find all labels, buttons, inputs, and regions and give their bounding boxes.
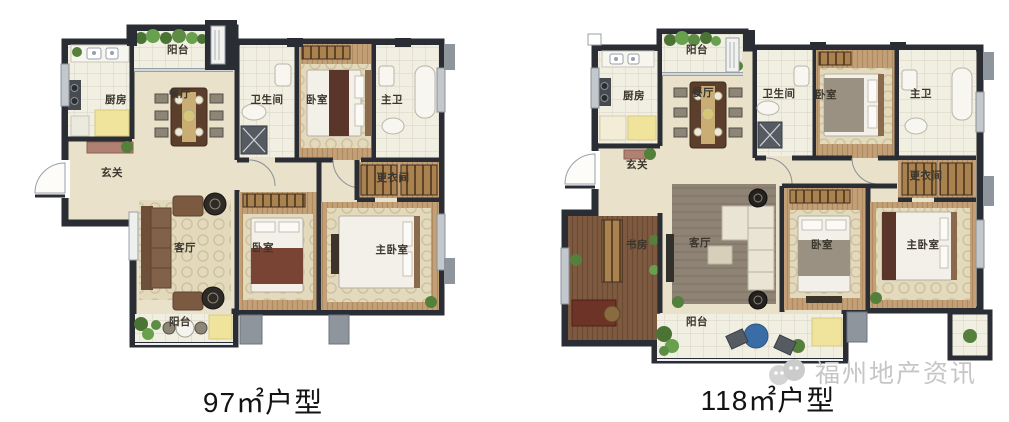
bathroom-area bbox=[755, 48, 815, 158]
room-label-closet: 更衣间 bbox=[910, 171, 943, 182]
watermark-logo-icon bbox=[766, 356, 808, 388]
bench bbox=[806, 296, 842, 303]
sofa-chaise bbox=[722, 206, 748, 240]
room-label-study: 书房 bbox=[626, 240, 648, 251]
toilet-icon bbox=[794, 66, 809, 86]
master-bedroom-area bbox=[321, 202, 439, 310]
room-label-living: 客厅 bbox=[689, 238, 711, 249]
cabinet bbox=[209, 315, 232, 339]
wardrobe-icon bbox=[243, 194, 305, 207]
side-table-icon bbox=[202, 287, 224, 309]
master-bedroom-area bbox=[870, 202, 976, 308]
toilet-icon bbox=[379, 66, 394, 86]
floorplan-image: 阳台 厨房 餐厅 卫生间 卧室 主卫 玄关 更衣间 客厅 卧室 主卧室 阳台 bbox=[0, 0, 1009, 422]
room-label-foyer: 玄关 bbox=[101, 168, 123, 179]
shoe-cabinet bbox=[624, 150, 646, 159]
wardrobe-icon bbox=[819, 52, 851, 65]
entry-door-arc bbox=[565, 154, 595, 184]
room-label-bedroom-1: 卧室 bbox=[811, 240, 833, 251]
armchair bbox=[173, 292, 203, 310]
water-heater-icon bbox=[211, 26, 225, 64]
bathtub-icon bbox=[952, 68, 972, 120]
master-bathroom-area bbox=[899, 50, 976, 156]
room-label-closet: 更衣间 bbox=[377, 173, 410, 184]
tv-bench bbox=[666, 234, 674, 282]
room-label-master-bath: 主卫 bbox=[910, 89, 932, 100]
chair-icon bbox=[604, 306, 620, 322]
room-label-balcony-bottom: 阳台 bbox=[686, 317, 708, 328]
bathtub-icon bbox=[415, 66, 435, 118]
study-area bbox=[561, 213, 660, 340]
room-label-balcony-top: 阳台 bbox=[686, 45, 708, 56]
room-label-balcony-bottom: 阳台 bbox=[169, 317, 191, 328]
room-label-kitchen: 厨房 bbox=[105, 95, 127, 106]
floorplan-118-drawing bbox=[560, 8, 1000, 368]
side-table-icon bbox=[204, 193, 226, 215]
room-label-bedroom-1: 卧室 bbox=[252, 243, 274, 254]
watermark-text: 福州地产资讯 bbox=[815, 354, 977, 390]
room-label-dining: 餐厅 bbox=[169, 89, 191, 100]
watermark: 福州地产资讯 bbox=[766, 354, 977, 390]
round-table-icon bbox=[744, 324, 768, 348]
toilet-icon bbox=[275, 64, 291, 86]
side-table-icon bbox=[749, 189, 767, 207]
wardrobe-icon bbox=[940, 163, 972, 195]
wardrobe-icon bbox=[302, 46, 350, 59]
armchair bbox=[173, 196, 203, 216]
room-label-balcony-top: 阳台 bbox=[167, 45, 189, 56]
sink-icon bbox=[905, 118, 927, 134]
floorplan-118: 阳台 厨房 餐厅 卫生间 卧室 主卫 玄关 更衣间 书房 客厅 卧室 主卧室 阳… bbox=[560, 8, 1000, 368]
sofa bbox=[748, 206, 774, 290]
bench bbox=[331, 234, 339, 274]
chair-icon bbox=[195, 322, 207, 334]
wardrobe-icon bbox=[790, 190, 850, 203]
plant-icon bbox=[870, 292, 882, 304]
sink-icon bbox=[382, 118, 404, 134]
plant-icon bbox=[121, 141, 133, 153]
room-label-master-bath: 主卫 bbox=[381, 95, 403, 106]
room-label-bedroom-2: 卧室 bbox=[306, 95, 328, 106]
living-room-area bbox=[666, 184, 782, 312]
room-label-bathroom: 卫生间 bbox=[251, 95, 284, 106]
kitchen-area bbox=[65, 42, 132, 139]
floorplan-97: 阳台 厨房 餐厅 卫生间 卧室 主卫 玄关 更衣间 客厅 卧室 主卧室 阳台 bbox=[35, 8, 455, 348]
ac-unit-icon bbox=[588, 34, 601, 45]
balcony-top-area bbox=[662, 30, 755, 74]
bookshelf-icon bbox=[602, 220, 622, 282]
sink-icon bbox=[757, 101, 779, 115]
bedroom-2-area bbox=[816, 48, 897, 158]
plant-icon bbox=[672, 296, 684, 308]
cabinet bbox=[812, 318, 842, 346]
side-table-icon bbox=[749, 291, 767, 309]
water-heater-icon bbox=[726, 38, 739, 72]
room-label-dining: 餐厅 bbox=[692, 88, 714, 99]
plant-icon bbox=[570, 254, 582, 266]
sink-icon bbox=[242, 104, 266, 120]
plant-icon bbox=[425, 296, 437, 308]
entry-door-arc bbox=[35, 163, 65, 193]
room-label-bathroom: 卫生间 bbox=[763, 89, 796, 100]
coffee-table bbox=[708, 246, 732, 264]
room-label-kitchen: 厨房 bbox=[623, 91, 645, 102]
room-label-master-bedroom: 主卧室 bbox=[907, 240, 940, 251]
window bbox=[129, 212, 138, 260]
plan-caption-97: 97㎡户型 bbox=[143, 381, 383, 421]
room-label-living: 客厅 bbox=[174, 243, 196, 254]
room-label-foyer: 玄关 bbox=[626, 160, 648, 171]
room-label-bedroom-2: 卧室 bbox=[815, 90, 837, 101]
room-label-master-bedroom: 主卧室 bbox=[376, 245, 409, 256]
